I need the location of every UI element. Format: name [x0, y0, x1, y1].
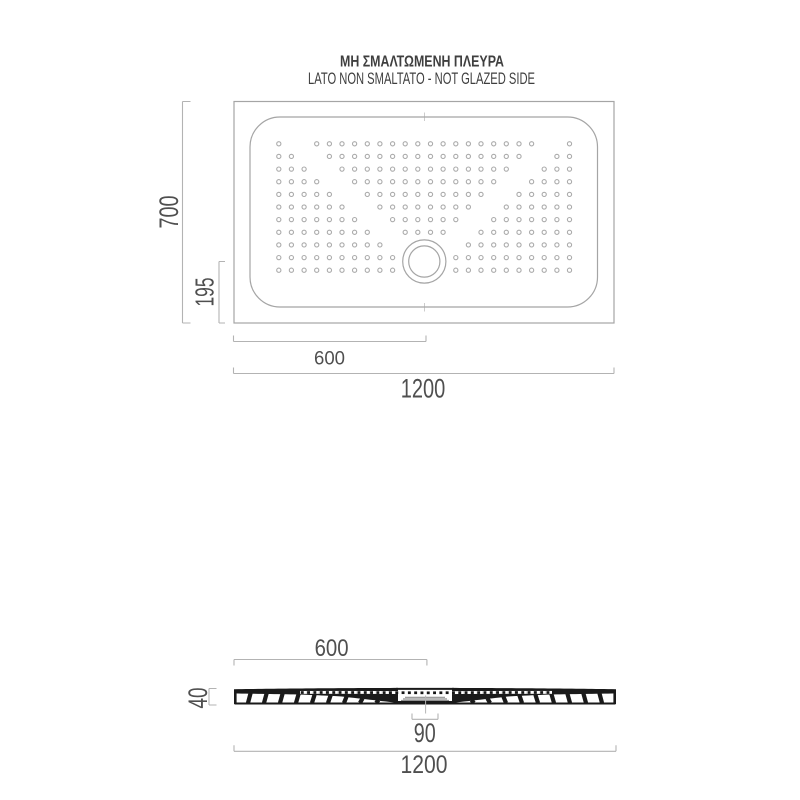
svg-text:90: 90: [414, 718, 436, 748]
svg-text:1200: 1200: [401, 374, 446, 404]
svg-text:40: 40: [183, 688, 213, 709]
svg-text:ΜΗ ΣΜΑΛΤΩΜΕΝΗ ΠΛΕΥΡΑ: ΜΗ ΣΜΑΛΤΩΜΕΝΗ ΠΛΕΥΡΑ: [340, 54, 504, 71]
svg-text:LATO NON SMALTATO - NOT GLAZED: LATO NON SMALTATO - NOT GLAZED SIDE: [308, 70, 535, 88]
svg-text:700: 700: [154, 196, 184, 229]
svg-text:600: 600: [315, 635, 349, 662]
svg-text:195: 195: [190, 278, 220, 307]
svg-text:600: 600: [314, 348, 345, 370]
svg-text:1200: 1200: [401, 751, 448, 779]
